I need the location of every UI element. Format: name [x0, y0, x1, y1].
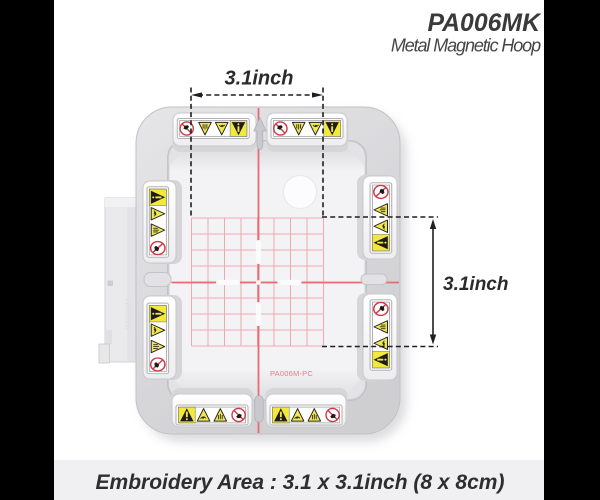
svg-text:PA006M-PC: PA006M-PC — [270, 369, 313, 378]
svg-text:3.1inch: 3.1inch — [225, 68, 294, 90]
svg-text:Metal Magnetic Hoop: Metal Magnetic Hoop — [391, 36, 541, 56]
svg-text:PA006M: PA006M — [123, 298, 133, 330]
svg-text:Embroidery Area : 3.1 x 3.1inc: Embroidery Area : 3.1 x 3.1inch (8 x 8cm… — [96, 471, 505, 494]
svg-text:PA006MK: PA006MK — [427, 10, 542, 37]
svg-text:3.1inch: 3.1inch — [443, 274, 508, 295]
